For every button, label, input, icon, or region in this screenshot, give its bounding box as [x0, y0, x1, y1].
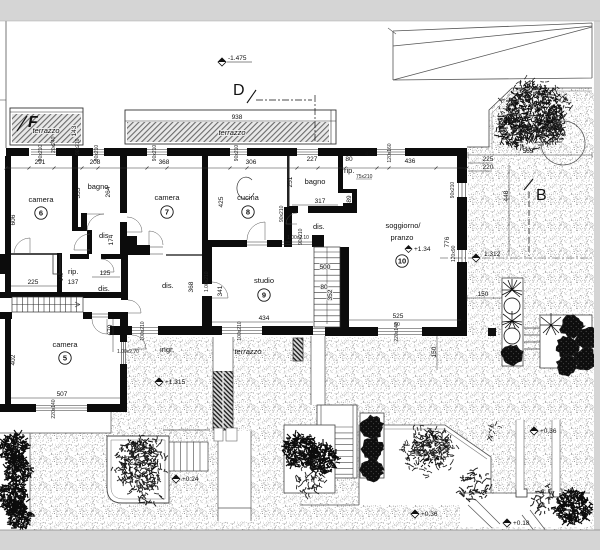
svg-text:436: 436	[405, 158, 416, 165]
svg-text:D: D	[233, 82, 245, 99]
svg-text:306: 306	[246, 159, 257, 166]
svg-text:F: F	[28, 114, 39, 131]
svg-text:120x160: 120x160	[387, 143, 393, 162]
svg-text:137: 137	[68, 279, 79, 286]
svg-text:938: 938	[232, 114, 243, 121]
svg-text:cucina: cucina	[237, 193, 260, 202]
svg-text:220x140: 220x140	[51, 399, 57, 418]
svg-text:150: 150	[478, 291, 489, 298]
svg-text:143: 143	[59, 273, 65, 282]
svg-text:670: 670	[107, 324, 114, 335]
svg-text:studio: studio	[254, 276, 274, 285]
svg-text:143: 143	[71, 125, 78, 136]
svg-text:7: 7	[165, 208, 169, 217]
svg-text:606: 606	[10, 214, 17, 225]
svg-text:208: 208	[90, 159, 101, 166]
svg-text:120x90: 120x90	[451, 245, 457, 262]
svg-text:dis.: dis.	[313, 222, 325, 231]
svg-text:camera: camera	[154, 193, 180, 202]
svg-text:9: 9	[262, 291, 266, 300]
svg-text:341: 341	[217, 285, 224, 296]
svg-text:dis.: dis.	[162, 281, 174, 290]
svg-text:+0.36: +0.36	[421, 511, 438, 518]
svg-text:434: 434	[259, 315, 270, 322]
svg-text:+0.36: +0.36	[540, 428, 557, 435]
svg-text:90x210: 90x210	[75, 138, 81, 155]
svg-text:335: 335	[75, 187, 82, 198]
svg-text:10: 10	[398, 257, 406, 266]
svg-text:+0.24: +0.24	[182, 476, 199, 483]
svg-text:rip.: rip.	[68, 267, 78, 276]
svg-text:1.312: 1.312	[484, 251, 501, 258]
svg-text:174: 174	[108, 234, 115, 245]
svg-text:rip.: rip.	[344, 166, 354, 175]
svg-text:264: 264	[105, 186, 112, 197]
svg-text:225: 225	[28, 279, 39, 286]
svg-text:317: 317	[315, 198, 326, 205]
svg-text:B: B	[536, 187, 547, 204]
svg-text:80: 80	[345, 156, 353, 163]
svg-text:camera: camera	[28, 195, 54, 204]
svg-text:bagno: bagno	[305, 177, 326, 186]
svg-text:terrazzo: terrazzo	[218, 128, 245, 137]
svg-text:90x210: 90x210	[234, 145, 240, 162]
svg-text:525: 525	[393, 313, 404, 320]
svg-text:dis.: dis.	[98, 284, 110, 293]
svg-text:402: 402	[10, 354, 17, 365]
svg-text:291: 291	[35, 159, 46, 166]
svg-text:50: 50	[394, 322, 400, 328]
svg-text:8: 8	[246, 208, 250, 217]
svg-text:20x240: 20x240	[51, 136, 57, 153]
svg-text:terrazzo: terrazzo	[234, 347, 261, 356]
svg-text:251: 251	[287, 176, 294, 187]
svg-text:camera: camera	[52, 340, 78, 349]
svg-text:100x210: 100x210	[237, 321, 243, 340]
svg-text:352: 352	[327, 289, 334, 300]
svg-text:89: 89	[346, 195, 353, 203]
svg-text:368: 368	[188, 281, 195, 292]
svg-text:776: 776	[444, 236, 451, 247]
svg-text:220: 220	[483, 164, 494, 171]
svg-text:90x210: 90x210	[298, 228, 304, 245]
svg-text:425: 425	[218, 196, 225, 207]
svg-text:5: 5	[63, 354, 67, 363]
svg-text:507: 507	[57, 391, 68, 398]
svg-text:125: 125	[100, 270, 111, 277]
svg-text:6: 6	[39, 209, 43, 218]
svg-text:pranzo: pranzo	[391, 233, 414, 242]
svg-text:227: 227	[307, 156, 318, 163]
svg-text:420: 420	[365, 151, 376, 158]
svg-text:448: 448	[503, 190, 510, 201]
svg-text:1.00x2.70: 1.00x2.70	[117, 349, 139, 355]
svg-text:150: 150	[431, 346, 438, 357]
svg-text:90x210: 90x210	[450, 182, 456, 199]
svg-text:500: 500	[320, 264, 331, 271]
svg-text:-1.475: -1.475	[228, 55, 247, 62]
svg-text:100x210: 100x210	[140, 321, 146, 340]
svg-text:90x210: 90x210	[279, 205, 285, 222]
svg-text:368: 368	[159, 159, 170, 166]
svg-text:+1.315: +1.315	[165, 379, 185, 386]
svg-text:soggiorno/: soggiorno/	[385, 221, 421, 230]
svg-text:90x210: 90x210	[152, 145, 158, 162]
svg-text:+1.34: +1.34	[414, 246, 431, 253]
svg-text:ingr.: ingr.	[160, 345, 174, 354]
svg-text:225: 225	[483, 156, 494, 163]
svg-text:+0.18: +0.18	[513, 520, 530, 527]
svg-text:1.00x210: 1.00x210	[204, 271, 210, 292]
